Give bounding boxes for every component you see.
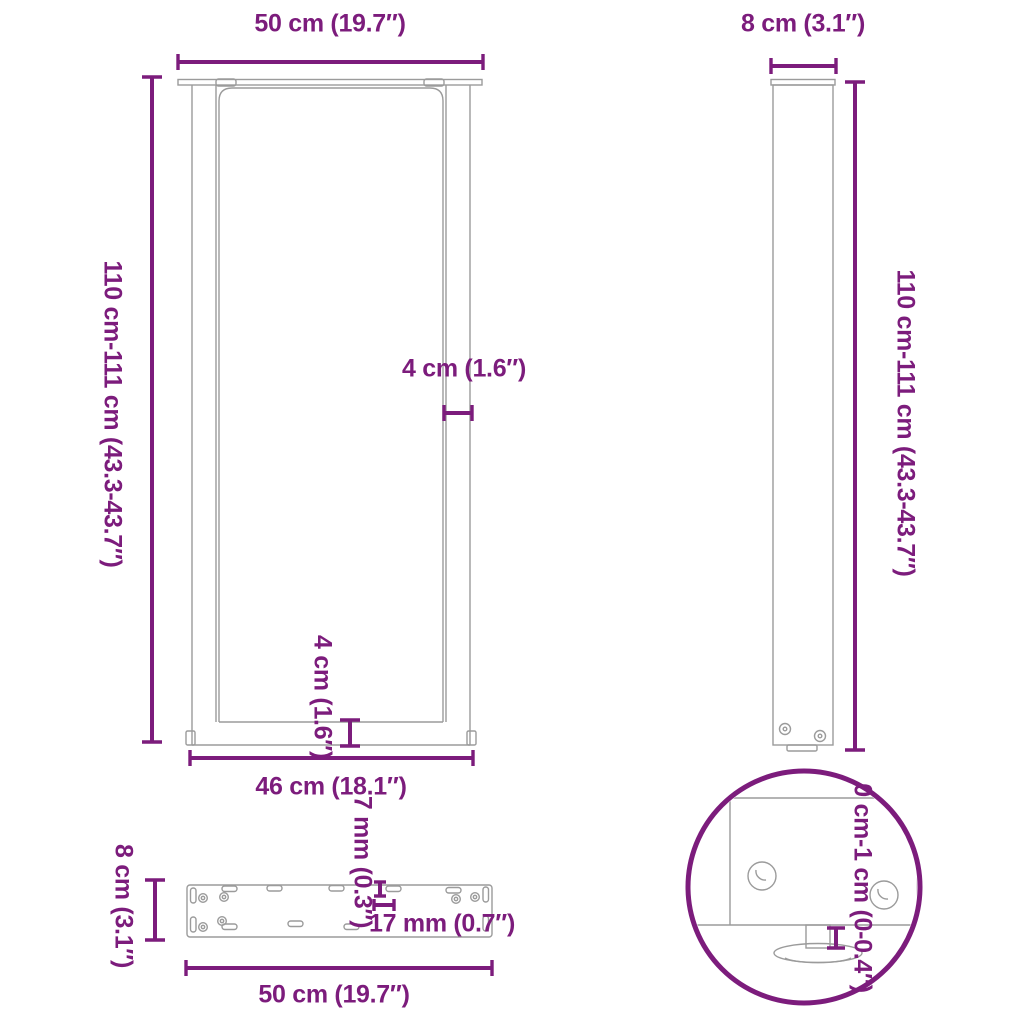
detail-circle-border — [688, 771, 920, 1003]
front-inner-width-label: 46 cm (18.1″) — [255, 775, 406, 800]
front-tube-width-label: 4 cm (1.6″) — [402, 357, 526, 382]
side-width-top-label: 8 cm (3.1″) — [741, 12, 865, 37]
dimension-diagram: 50 cm (19.7″) 110 cm-111 cm (43.3-43.7″)… — [0, 0, 1024, 1024]
detail-circle-view — [688, 760, 920, 1003]
plate-depth-left-label: 8 cm (3.1″) — [111, 844, 136, 968]
dimension-lines — [142, 54, 865, 976]
front-width-top-label: 50 cm (19.7″) — [254, 12, 405, 37]
side-view-drawing — [771, 80, 835, 752]
plate-width-bottom-label: 50 cm (19.7″) — [258, 983, 409, 1008]
side-height-right-label: 110 cm-111 cm (43.3-43.7″) — [893, 269, 918, 576]
plate-7mm-offset-label: 7 mm (0.3″) — [350, 796, 375, 928]
foot-adjust-range-label: 0 cm-1 cm (0-0.4″) — [850, 783, 875, 992]
plate-17mm-offset-label: 17 mm (0.7″) — [369, 912, 515, 937]
front-height-left-label: 110 cm-111 cm (43.3-43.7″) — [100, 260, 125, 567]
front-crossbar-height-label: 4 cm (1.6″) — [310, 635, 335, 759]
